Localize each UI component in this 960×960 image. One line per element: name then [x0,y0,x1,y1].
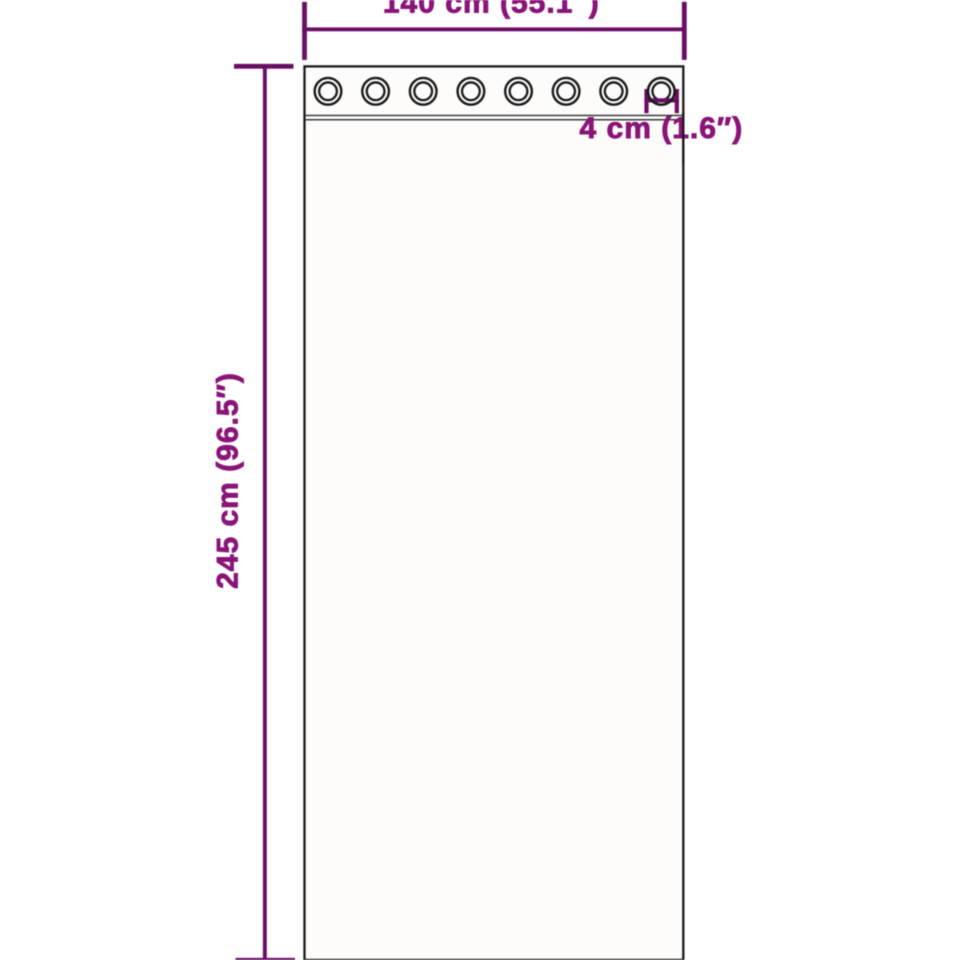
svg-text:140 cm (55.1″): 140 cm (55.1″) [383,0,600,20]
svg-text:4 cm (1.6″): 4 cm (1.6″) [580,112,744,145]
svg-text:245 cm (96.5″): 245 cm (96.5″) [212,372,245,589]
